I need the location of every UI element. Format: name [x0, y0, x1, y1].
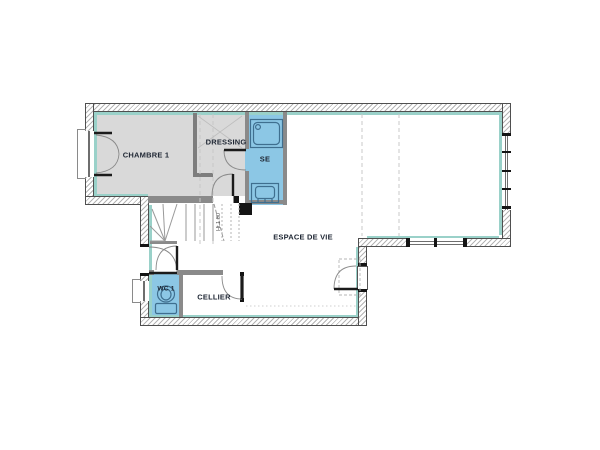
casement-arc-top: [96, 135, 119, 154]
shower-icon: [251, 120, 283, 148]
reference-lines: [200, 114, 399, 245]
room-label-se: SE: [260, 155, 270, 164]
floor-plan: CHAMBRE 1 DRESSING SE ESPACE DE VIE WC 1…: [0, 0, 600, 450]
room-label-espace-de-vie: ESPACE DE VIE: [273, 233, 333, 242]
door-swing-arcs: [96, 135, 356, 299]
door-arc-se: [224, 150, 246, 170]
door-arc-main-entry: [334, 266, 356, 289]
room-label-dressing: DRESSING: [206, 138, 247, 147]
stairs-icon: [150, 204, 213, 241]
room-label-wc-1: WC 1: [157, 286, 174, 293]
stairs-cut-treads: [222, 204, 239, 241]
casement-arc-bottom: [96, 154, 119, 173]
plan-linework: [0, 0, 600, 450]
room-label-cellier: CELLIER: [197, 293, 230, 302]
stair-height-annotation: Ht 1.80: [216, 213, 222, 231]
room-label-chambre-1: CHAMBRE 1: [123, 151, 169, 160]
washbasin-icon: [252, 184, 279, 204]
door-arc-dressing: [212, 174, 233, 196]
